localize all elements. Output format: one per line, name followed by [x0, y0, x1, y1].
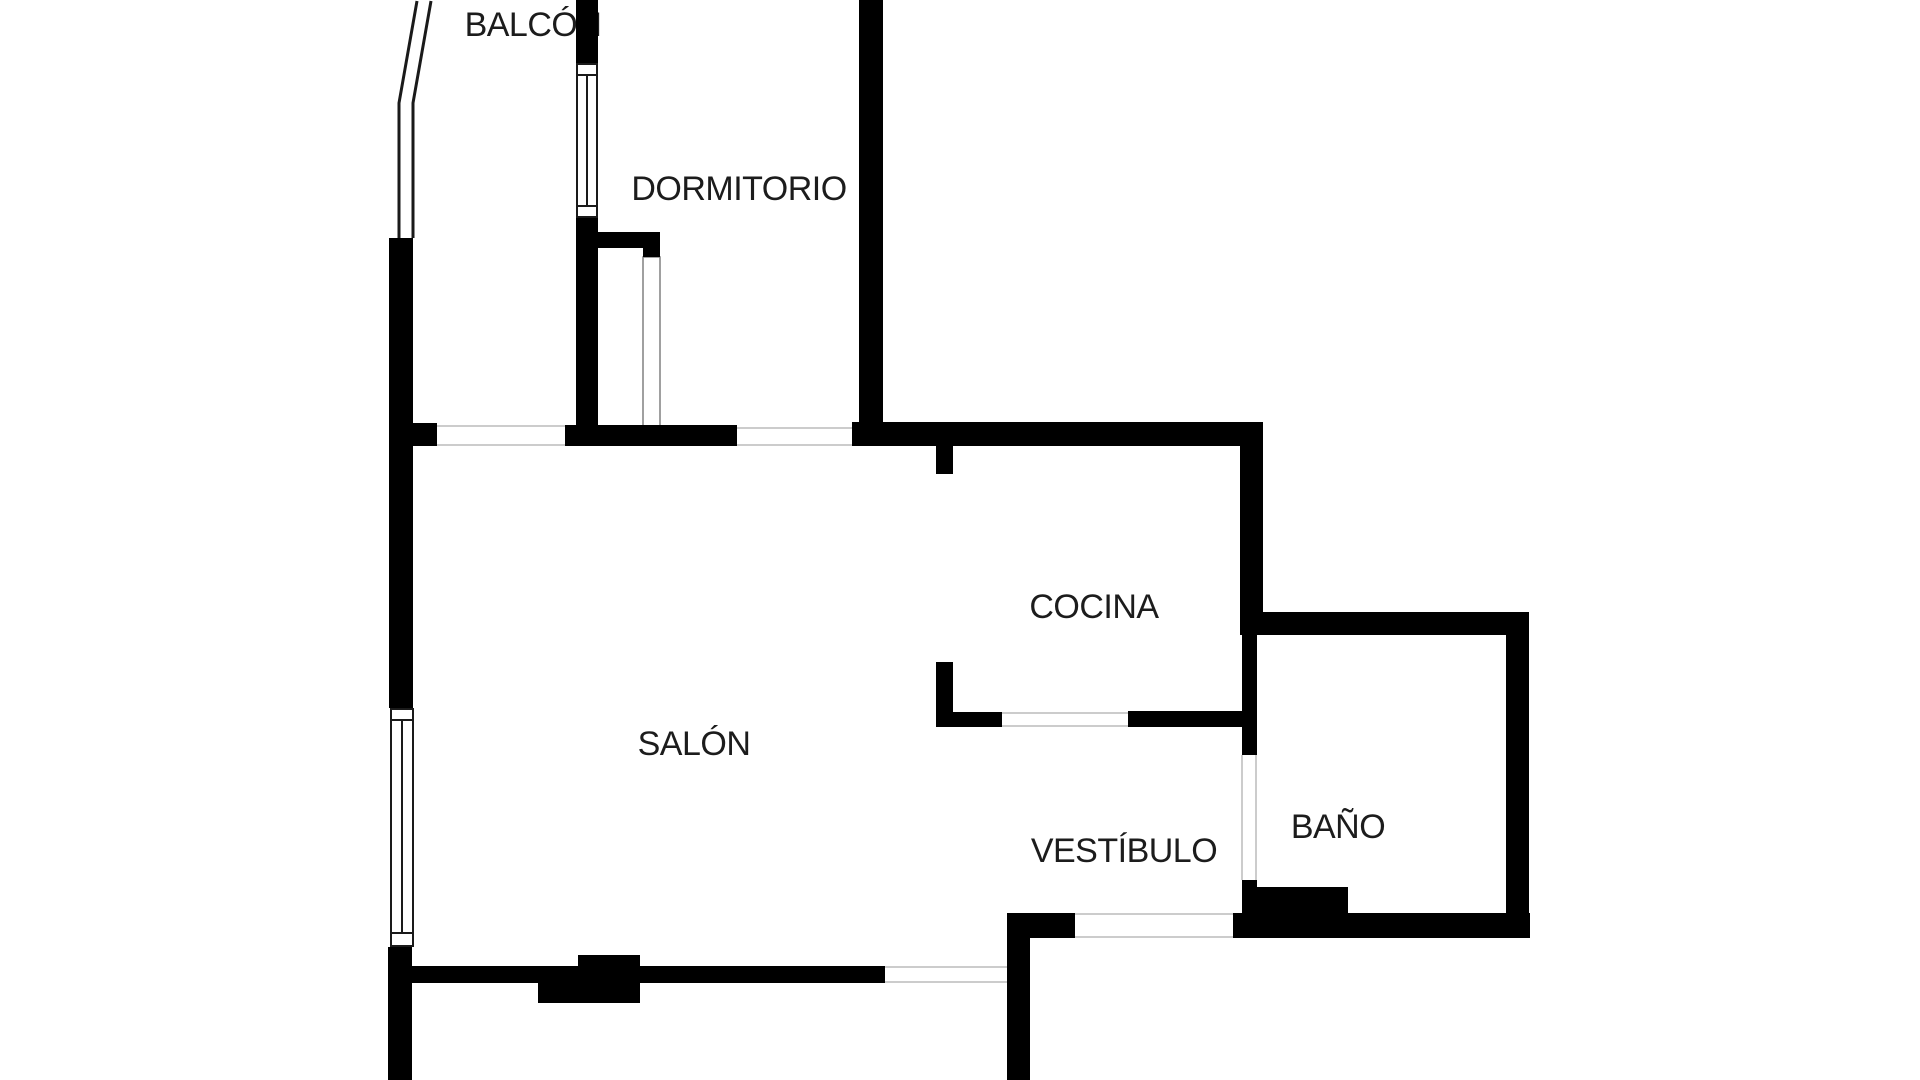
cocina-stub-horizontal	[936, 712, 1002, 727]
dormitorio-left-wall	[576, 218, 598, 446]
dormitorio-left-wall-top	[576, 0, 598, 63]
dormitorio-right-wall	[859, 0, 883, 446]
room-label-bano: BAÑO	[1291, 808, 1385, 846]
room-label-salon: SALÓN	[638, 725, 751, 763]
salon-pillar-bottom	[538, 983, 640, 1003]
cocina-top-wall	[852, 422, 1263, 446]
cocina-door-stub-upper	[936, 446, 953, 474]
salon-bottom-wall	[405, 966, 885, 983]
dormitorio-door-jamb	[643, 232, 660, 257]
door-leaves-layer	[643, 257, 660, 429]
cocina-bano-wall	[1240, 446, 1263, 635]
balcony-railing-inner	[413, 1, 431, 238]
left-wall-door-stub	[389, 423, 437, 446]
salon-pillar-top	[578, 955, 640, 968]
dormitorio-door-leaf	[643, 257, 660, 429]
balcony-railing	[399, 1, 431, 238]
windows-layer	[390, 64, 598, 946]
left-wall-upper	[389, 238, 413, 708]
room-label-vestibulo: VESTÍBULO	[1031, 832, 1217, 870]
floor-plan-svg: BALCÓNDORMITORIOCOCINASALÓNVESTÍBULOBAÑO	[0, 0, 1920, 1080]
bano-right-wall	[1506, 612, 1529, 938]
vestibulo-cocina-wall	[1128, 711, 1257, 727]
bano-corner-block	[1242, 887, 1348, 913]
room-label-cocina: COCINA	[1029, 588, 1159, 626]
floor-plan-canvas: BALCÓNDORMITORIOCOCINASALÓNVESTÍBULOBAÑO	[0, 0, 1920, 1080]
openings-layer	[437, 426, 1256, 982]
vestibulo-left-wall	[1007, 913, 1030, 1080]
bano-top-wall	[1263, 612, 1529, 635]
walls-layer	[388, 0, 1530, 1080]
bano-bottom-wall	[1233, 913, 1530, 938]
room-label-dormitorio: DORMITORIO	[631, 170, 846, 208]
vestibulo-bottom-wall	[1007, 913, 1075, 938]
bano-left-wall	[1242, 635, 1257, 755]
